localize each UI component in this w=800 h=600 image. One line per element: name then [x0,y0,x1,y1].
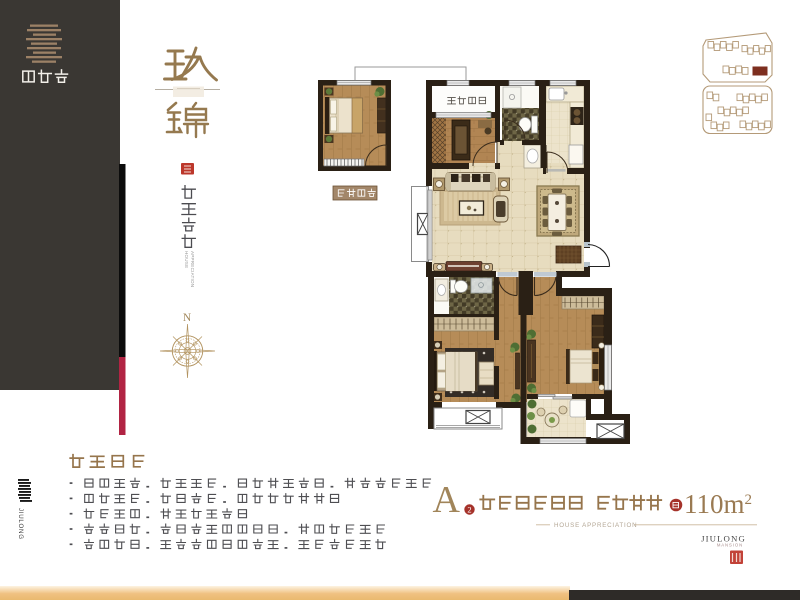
svg-text:110m2: 110m2 [684,489,752,519]
svg-text:APPRECIATION: APPRECIATION [190,251,195,287]
svg-text:HOUSE: HOUSE [184,251,189,268]
svg-text:JIULONG: JIULONG [17,508,24,540]
svg-text:2: 2 [467,505,471,515]
svg-text:N: N [183,312,192,324]
svg-text:MANSION: MANSION [717,543,743,548]
svg-text:A: A [433,479,461,521]
svg-text:HOUSE APPRECIATION: HOUSE APPRECIATION [554,522,637,529]
